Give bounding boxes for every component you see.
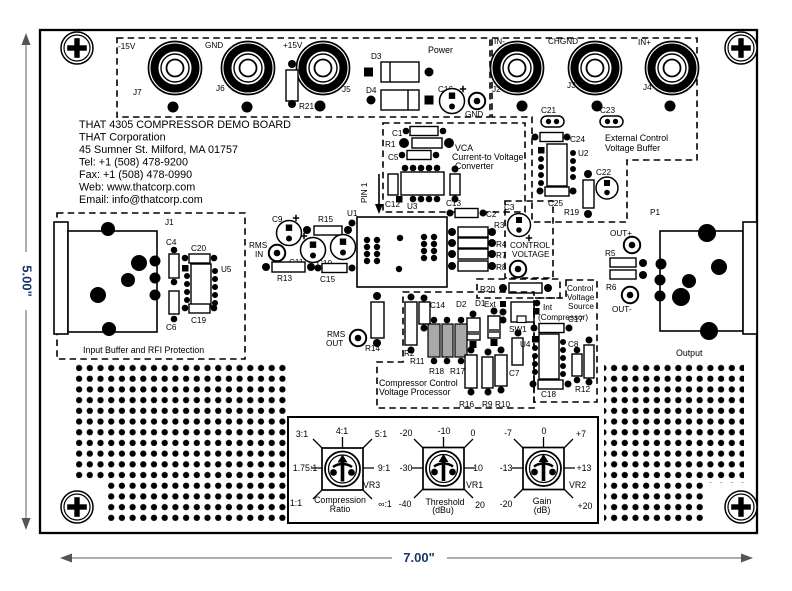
label-VR3: VR3: [363, 480, 380, 490]
vr3-scale-4to1: 4:1: [336, 426, 348, 436]
ic-U1: [349, 217, 448, 287]
company-fax: Fax: +1 (508) 478-0990: [79, 169, 192, 181]
board-title: THAT 4305 COMPRESSOR DEMO BOARD: [79, 119, 291, 131]
capacitor-C16: C16: [438, 85, 466, 114]
ecvb-label-line1: External Control: [605, 133, 668, 143]
pcb-assembly-drawing: 5.00" 7.00" THAT 4305 COMPRESSOR DEMO BO…: [0, 0, 792, 591]
label-control-voltage-line2: VOLTAGE: [512, 250, 550, 259]
label-C2: C2: [486, 210, 497, 219]
vr3-scale-9to1: 9:1: [378, 463, 390, 473]
label-C15: C15: [320, 275, 335, 284]
testpoint-out-plus: [624, 237, 640, 253]
connector-P1: [655, 222, 758, 340]
company-web: Web: www.thatcorp.com: [79, 182, 195, 194]
label-R1: R1: [385, 140, 396, 149]
label-D1: D1: [475, 299, 486, 308]
mounting-screw-top-left: [61, 32, 93, 64]
label-C6: C6: [166, 323, 177, 332]
testpoint-rms-in: [269, 245, 285, 261]
mounting-screw-bottom-right: [725, 491, 757, 523]
company-email: Email: info@thatcorp.com: [79, 194, 203, 206]
label-C22: C22: [596, 168, 611, 177]
vr1-scale-m40: -40: [399, 499, 412, 509]
power-section-label: Power: [428, 45, 453, 55]
vr3-scale-175to1: 1.75:1: [293, 463, 318, 473]
label-U3: U3: [407, 202, 418, 211]
label-rms-out-line2: OUT: [326, 339, 343, 348]
label-R17: R17: [450, 367, 465, 376]
controls-panel: 3:1 4:1 5:1 1.75:1 9:1 VR3 1:1 ∞:1 Compr…: [288, 417, 598, 523]
vr1-scale-0: 0: [471, 428, 476, 438]
label-J2: J2: [492, 85, 501, 94]
capacitor-C12: C12: [385, 174, 400, 209]
label-R21: R21: [299, 102, 314, 111]
label-R3: R3: [494, 221, 505, 230]
vr3-scale-5to1: 5:1: [375, 429, 387, 439]
cvs-label-line1: Control: [567, 284, 594, 293]
label-rms-in-line2: IN: [255, 250, 263, 259]
label-C13: C13: [446, 199, 461, 208]
ccvp-label-line2: Voltage Processor: [379, 387, 450, 397]
testpoint-rms-out: [350, 330, 366, 346]
label-C21: C21: [541, 106, 556, 115]
knob-VR2: [523, 448, 564, 490]
label-VR1: VR1: [466, 480, 483, 490]
label-R12: R12: [575, 385, 590, 394]
vr3-scale-inf: ∞:1: [378, 499, 392, 509]
label-pin1: PIN 1: [360, 182, 369, 203]
dim-height-label: 5.00": [20, 265, 35, 296]
jack-J7: [149, 42, 202, 95]
resistor-R9: R9: [482, 349, 493, 410]
label-C24: C24: [570, 135, 585, 144]
label-D3: D3: [371, 52, 382, 61]
testpoint-GND: [469, 93, 485, 109]
label-D2: D2: [456, 300, 467, 309]
label-D4: D4: [366, 86, 377, 95]
mounting-screw-top-right: [725, 32, 757, 64]
vr1-scale-m10: -10: [438, 426, 451, 436]
vr2-scale-m13: -13: [500, 463, 513, 473]
label-C3: C3: [504, 203, 515, 212]
label-C20: C20: [191, 244, 206, 253]
label-J4: J4: [643, 83, 652, 92]
label-in-minus: IN-: [494, 37, 505, 46]
vr3-caption-line2: Ratio: [330, 504, 351, 514]
cvs-label-line3: Source: [568, 302, 594, 311]
label-U2: U2: [578, 149, 589, 158]
jack-J6: [222, 42, 275, 95]
label-gnd-jack: GND: [205, 41, 223, 50]
label-C19: C19: [191, 316, 206, 325]
testpoint-out-minus: [622, 287, 638, 303]
vr2-caption-line2: (dB): [534, 505, 551, 515]
vr2-scale-p20: +20: [578, 501, 593, 511]
label-R11: R11: [410, 357, 425, 366]
dim-width: 7.00": [60, 550, 753, 565]
label-U5: U5: [221, 265, 232, 274]
label-R10: R10: [495, 400, 510, 409]
vr3-scale-3to1: 3:1: [296, 429, 308, 439]
jack-J3: [569, 42, 622, 95]
cvs-label-line2: Voltage: [567, 293, 595, 302]
vr1-scale-m30: -30: [400, 463, 413, 473]
label-C23: C23: [600, 106, 615, 115]
input-buffer-label: Input Buffer and RFI Protection: [83, 345, 204, 355]
output-label: Output: [676, 348, 703, 358]
label-C17: C17: [568, 315, 583, 324]
vr1-scale-10: 10: [473, 463, 483, 473]
testpoint-control-voltage: [510, 261, 526, 277]
vr3-scale-1to1: 1:1: [290, 498, 302, 508]
label-P1: P1: [650, 208, 660, 217]
vr2-scale-p13: +13: [577, 463, 592, 473]
label-J6: J6: [216, 84, 225, 93]
label-R19: R19: [564, 208, 579, 217]
label-int: Int: [543, 303, 553, 312]
vr1-scale-m20: -20: [400, 428, 413, 438]
vr1-scale-20: 20: [475, 500, 485, 510]
label-chgnd: CHGND: [548, 37, 578, 46]
company-tel: Tel: +1 (508) 478-9200: [79, 157, 188, 169]
vca-label-line3: Converter: [455, 161, 494, 171]
vr2-scale-m20: -20: [500, 499, 513, 509]
label-J7: J7: [133, 88, 142, 97]
vr2-scale-0: 0: [542, 426, 547, 436]
ecvb-label-line2: Voltage Buffer: [605, 143, 660, 153]
dim-width-label: 7.00": [403, 550, 434, 565]
label-C5: C5: [388, 153, 399, 162]
label-C18: C18: [541, 390, 556, 399]
connector-J1: [54, 222, 161, 336]
label-rms-in-line1: RMS: [249, 241, 268, 250]
label-out-minus: OUT-: [612, 305, 632, 314]
label-control-voltage-line1: CONTROL: [510, 241, 550, 250]
knob-VR3: [322, 448, 363, 490]
label-rms-out-line1: RMS: [327, 330, 346, 339]
knob-VR1: [423, 448, 464, 490]
mounting-screw-bottom-left: [61, 491, 93, 523]
label-J3: J3: [567, 81, 576, 90]
label-U4: U4: [520, 340, 531, 349]
label-J5: J5: [342, 85, 351, 94]
label-R9: R9: [482, 400, 493, 409]
label-C12: C12: [385, 200, 400, 209]
label-C7: C7: [509, 369, 520, 378]
label-R15: R15: [318, 215, 333, 224]
label-C4: C4: [166, 238, 177, 247]
label-C14: C14: [430, 301, 445, 310]
company-name: THAT Corporation: [79, 132, 166, 144]
label-R6: R6: [606, 283, 617, 292]
label-R16: R16: [459, 400, 474, 409]
label-R14: R14: [365, 344, 380, 353]
label-R18: R18: [429, 367, 444, 376]
company-address: 45 Sumner St. Milford, MA 01757: [79, 144, 238, 156]
label-C1: C1: [392, 129, 403, 138]
label-VR2: VR2: [569, 480, 586, 490]
vr2-scale-p7: +7: [576, 429, 586, 439]
vr2-scale-m7: -7: [504, 428, 512, 438]
label-in-plus: IN+: [638, 38, 651, 47]
label-minus15v: -15V: [118, 42, 136, 51]
vr1-caption-line2: (dBu): [432, 505, 454, 515]
label-R5: R5: [605, 249, 616, 258]
jack-J4: [646, 42, 699, 95]
label-plus15v: +15V: [283, 41, 303, 50]
dim-height: 5.00": [20, 33, 35, 530]
label-R13: R13: [277, 274, 292, 283]
label-J1: J1: [165, 218, 174, 227]
label-gnd-testpoint: GND: [465, 110, 483, 119]
